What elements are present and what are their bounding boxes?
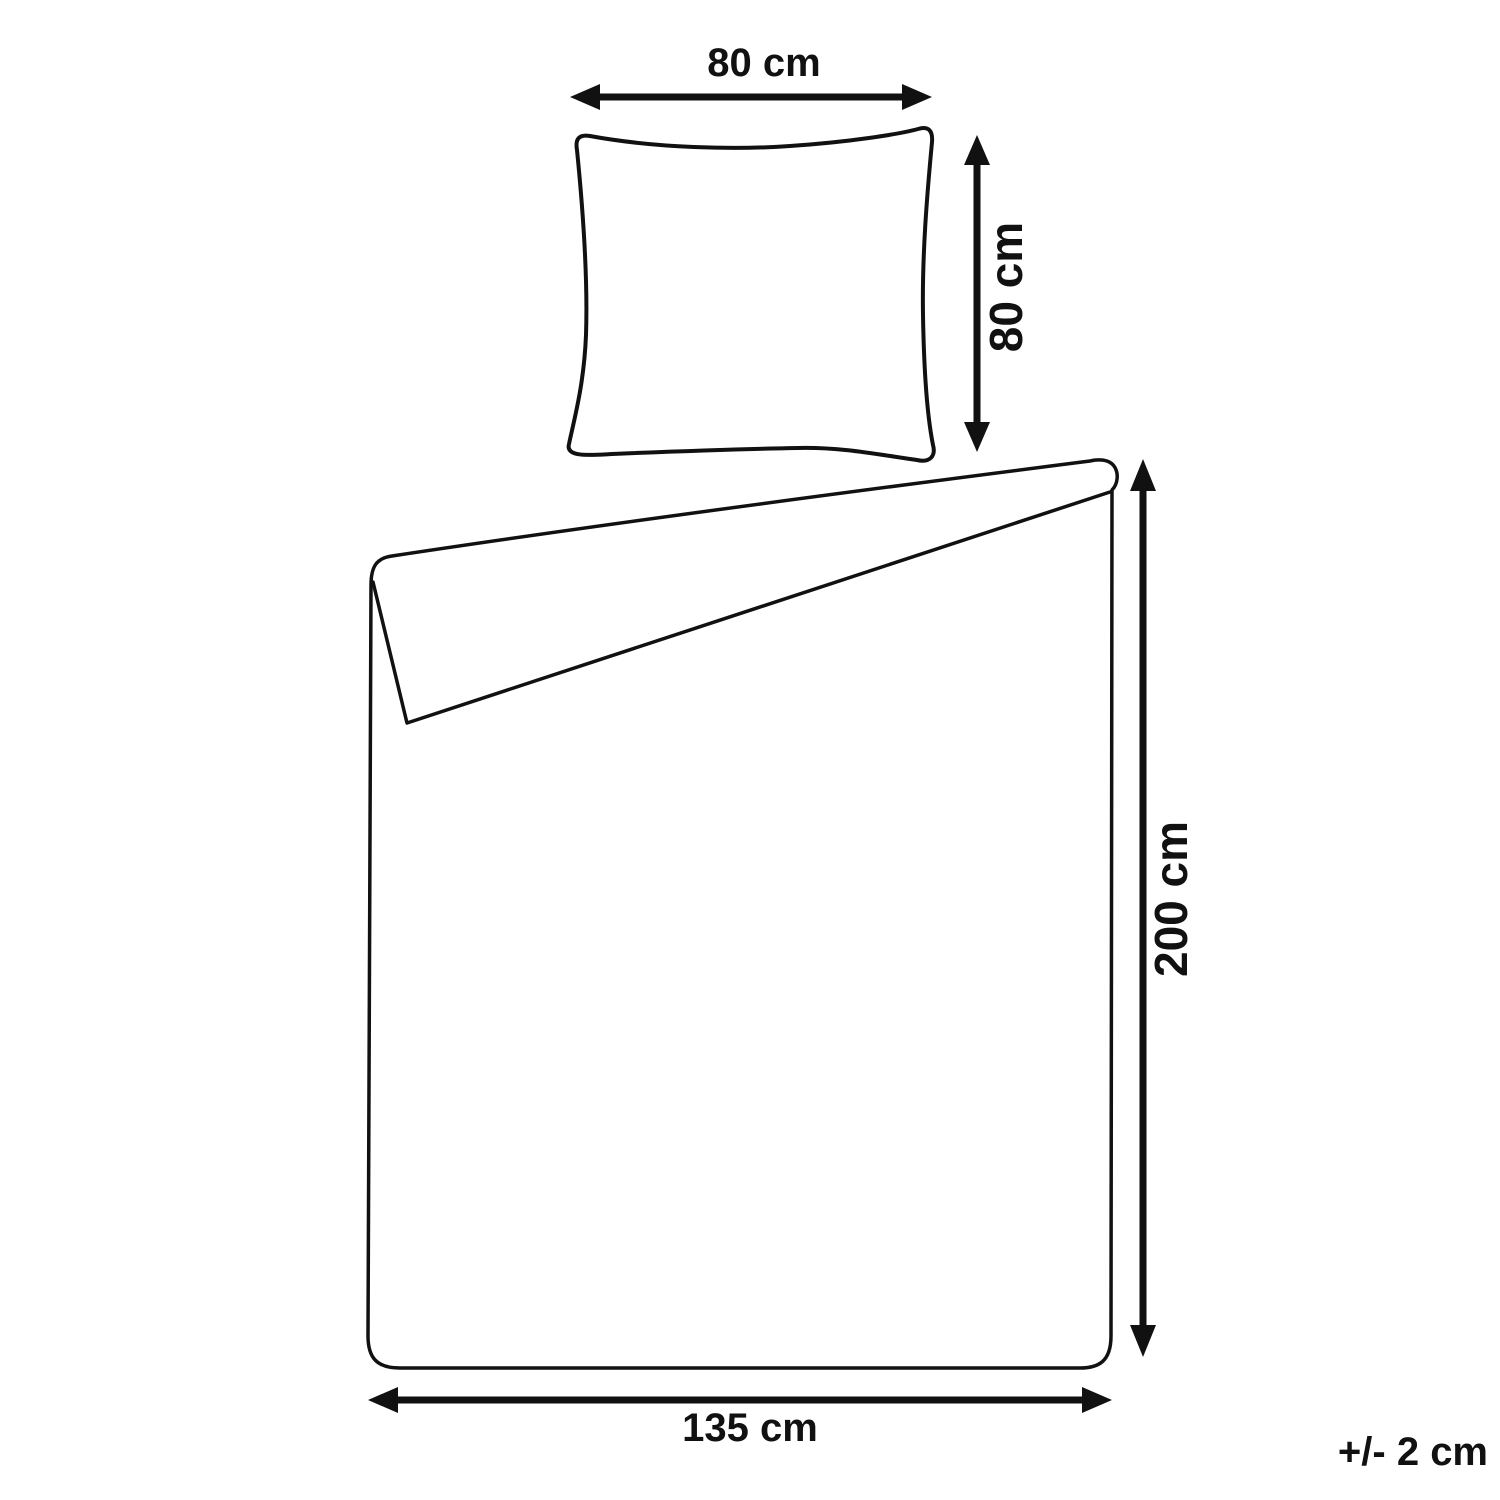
pillow-outline: [569, 128, 934, 461]
duvet-height-label: 200 cm: [1148, 821, 1194, 977]
duvet-width-arrowhead-left: [368, 1387, 398, 1413]
pillow-width-arrowhead-left: [570, 84, 600, 110]
duvet-height-arrowhead-top: [1130, 459, 1156, 491]
duvet-width-arrowhead-right: [1082, 1387, 1112, 1413]
pillow-height-label: 80 cm: [983, 222, 1029, 352]
duvet-height-arrowhead-bottom: [1130, 1325, 1156, 1357]
duvet-width-label: 135 cm: [682, 1408, 818, 1448]
duvet-shape: [368, 460, 1117, 1368]
tolerance-label: +/- 2 cm: [1338, 1432, 1488, 1472]
pillow-height-arrowhead-top: [964, 135, 990, 165]
pillow-shape: [569, 128, 934, 461]
duvet-fold-crease-line: [373, 492, 1110, 723]
pillow-width-label: 80 cm: [707, 43, 820, 83]
pillow-width-dimension-arrow: [570, 84, 932, 110]
bedding-dimensions-diagram: 80 cm 80 cm 200 cm 135 cm +/- 2 cm: [0, 0, 1500, 1500]
pillow-height-arrowhead-bottom: [964, 422, 990, 452]
duvet-outline: [368, 460, 1117, 1368]
dimension-diagram-canvas: [0, 0, 1500, 1500]
pillow-width-arrowhead-right: [902, 84, 932, 110]
